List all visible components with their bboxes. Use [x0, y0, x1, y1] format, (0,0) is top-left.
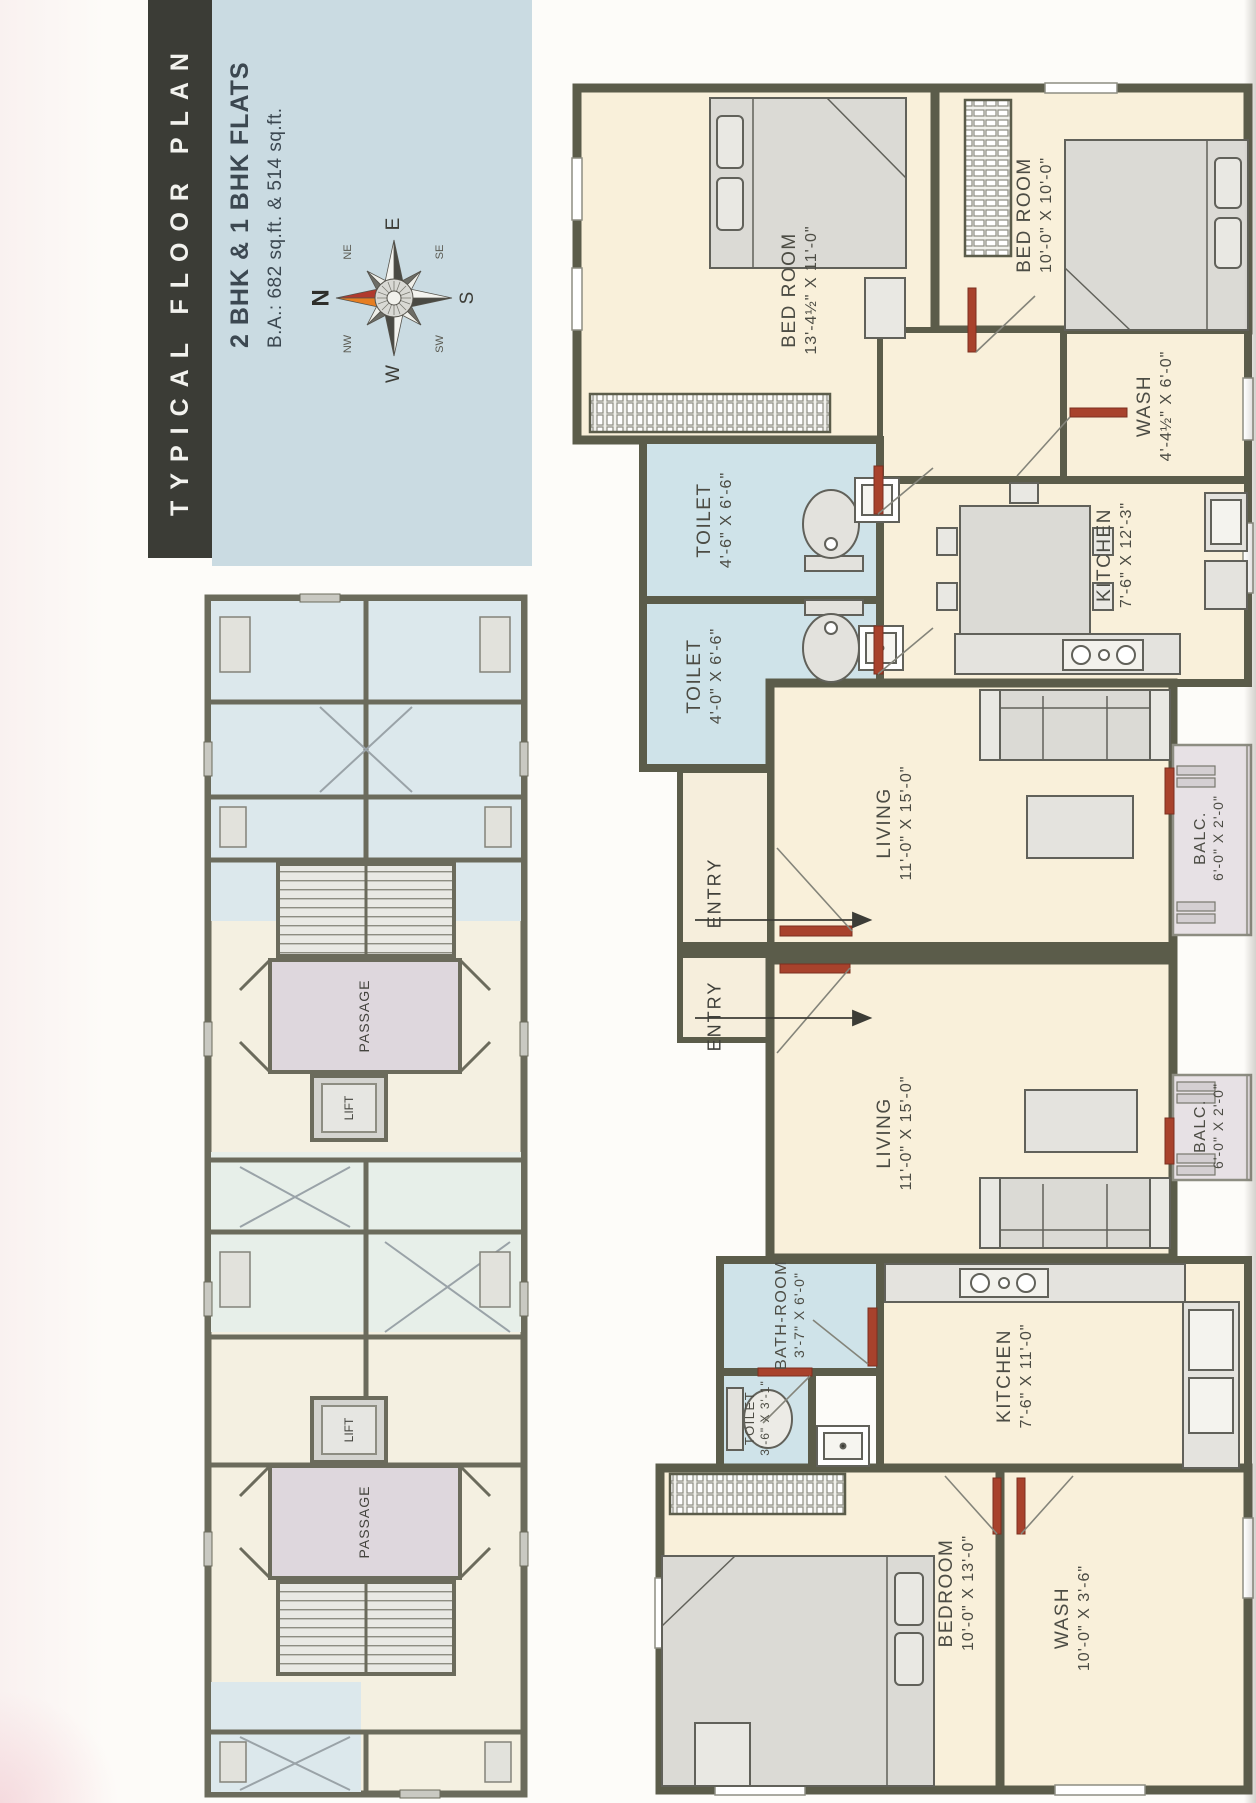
compass-n-label: N — [307, 289, 334, 306]
compass-nw-label: NW — [342, 334, 354, 353]
detailed-floor-plan: BED ROOM 13'-4½" X 11'-0" BED ROOM 10'-0… — [565, 78, 1256, 1803]
subtitle-line2: B.A.: 682 sq.ft. & 514 sq.ft. — [265, 48, 287, 348]
entry-label-2: ENTRY — [705, 981, 726, 1052]
compass-ne-label: NE — [342, 244, 354, 259]
compass-s-label: S — [457, 292, 478, 305]
title-bar: TYPICAL FLOOR PLAN — [148, 0, 212, 558]
compass-e-label: E — [383, 218, 404, 231]
floor-plan-drawing — [565, 78, 1256, 1803]
compass-sw-label: SW — [434, 335, 446, 353]
page-title: TYPICAL FLOOR PLAN — [166, 42, 195, 516]
scan-corner-tint — [0, 1690, 120, 1803]
subtitle-line1: 2 BHK & 1 BHK FLATS — [226, 48, 255, 348]
compass-se-label: SE — [434, 245, 446, 260]
compass-rose-icon: N E S W NE SE SW NW — [296, 200, 492, 396]
key-plan: PASSAGE LIFT LIFT PASSAGE — [200, 592, 532, 1800]
key-plan-passage-label-2: PASSAGE — [356, 1486, 372, 1559]
subtitle-block: 2 BHK & 1 BHK FLATS B.A.: 682 sq.ft. & 5… — [226, 48, 287, 348]
compass-w-label: W — [383, 365, 404, 383]
key-plan-lift-label-2: LIFT — [342, 1418, 356, 1443]
page-left-margin — [0, 0, 150, 1803]
scanned-floor-plan-page: TYPICAL FLOOR PLAN 2 BHK & 1 BHK FLATS B… — [0, 0, 1256, 1803]
key-plan-passage-label-1: PASSAGE — [356, 980, 372, 1053]
key-plan-lift-label-1: LIFT — [342, 1096, 356, 1121]
scan-edge-shadow — [1244, 0, 1256, 1803]
entry-label-1: ENTRY — [705, 858, 726, 929]
key-plan-drawing — [200, 592, 532, 1800]
